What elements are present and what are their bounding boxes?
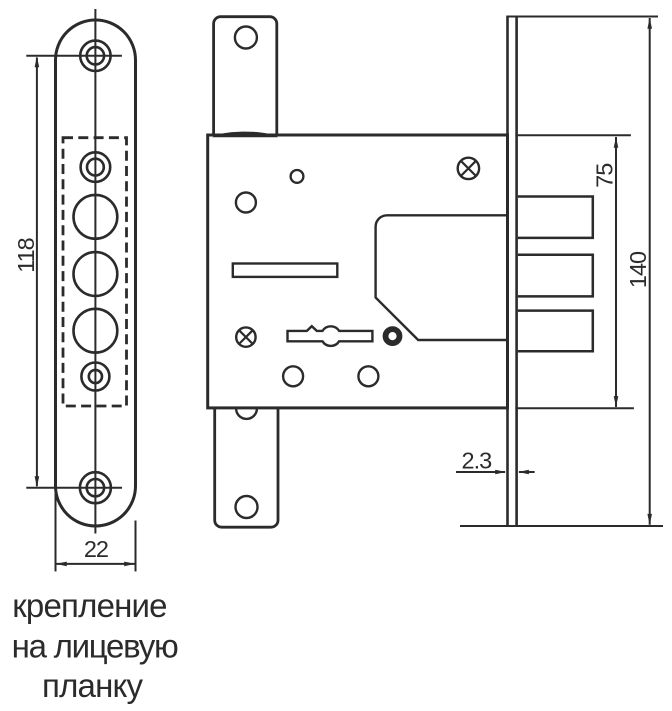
svg-text:118: 118 [13,237,39,272]
svg-text:крепление: крепление [12,587,166,624]
svg-text:22: 22 [84,536,108,562]
svg-text:планку: планку [42,667,144,704]
svg-text:75: 75 [592,163,618,188]
svg-text:140: 140 [625,251,651,288]
svg-text:2.3: 2.3 [462,448,493,474]
svg-text:на лицевую: на лицевую [12,628,178,665]
